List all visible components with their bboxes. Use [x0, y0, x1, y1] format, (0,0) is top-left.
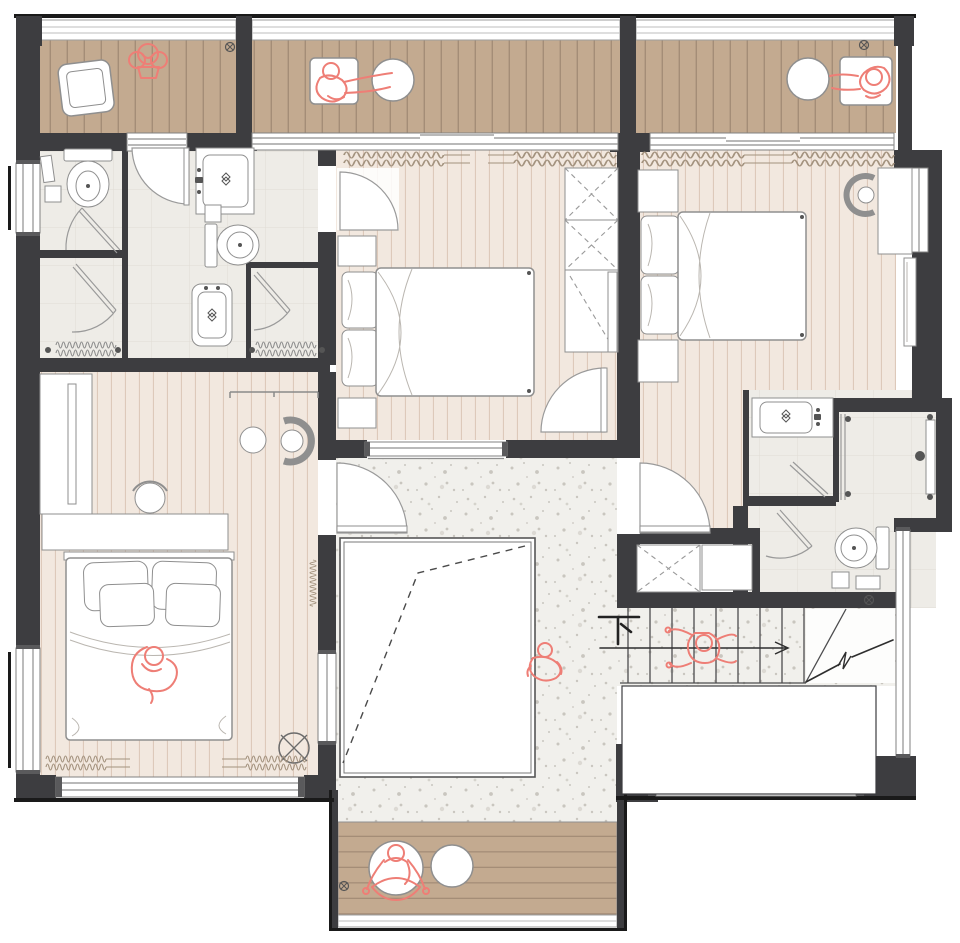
mirror-panel [608, 272, 617, 352]
floor-plan-page [0, 0, 960, 943]
vanity-center [195, 148, 254, 214]
window-left-bathroom [8, 160, 40, 236]
railing-top-center [252, 20, 620, 40]
hamper [205, 205, 221, 222]
railing-top-left [40, 20, 236, 40]
nightstand [338, 398, 376, 428]
window-bay-bedroom-right [912, 168, 928, 252]
toilet-wc-left [64, 149, 112, 207]
deck-balcony-top-center [252, 40, 620, 133]
stool [135, 483, 165, 513]
bed-left [64, 552, 234, 740]
window-bedroom-left-to-hall [318, 650, 336, 745]
waste-bin [832, 572, 849, 588]
void-opening [340, 538, 535, 777]
window-bedroom-center-to-hall [365, 442, 507, 459]
vanity-right [752, 398, 833, 437]
window-band-right [650, 133, 894, 150]
floor-plan-drawing [0, 0, 960, 943]
round-table-right [787, 58, 829, 100]
window-band-center [252, 133, 618, 150]
window-bedroom-left-bottom [56, 777, 304, 797]
bed-center [342, 268, 534, 396]
nightstand [338, 236, 376, 266]
wardrobe-left-bedroom [40, 374, 92, 514]
round-table-center [372, 59, 414, 101]
side-table [240, 427, 266, 453]
pedestal-sink-center [192, 284, 232, 346]
round-cushion [431, 845, 473, 887]
wardrobe-center-bedroom [565, 168, 618, 352]
window-stairs-right [896, 527, 910, 758]
railing-top-right [636, 20, 896, 40]
bed-right [641, 212, 806, 340]
desk [878, 168, 912, 254]
armchair-balcony-left [57, 59, 115, 117]
shower-head-bar [926, 420, 935, 494]
bath-rug [856, 576, 880, 589]
toilet-right [835, 527, 889, 569]
closet-by-stairs [637, 545, 752, 592]
floor-balcony-bottom-threshold [338, 790, 617, 822]
nightstand [638, 170, 678, 212]
toilet-center [205, 224, 259, 267]
wall-shelf [45, 186, 61, 202]
window-left-bedroom [8, 645, 40, 774]
mirror-panel [904, 258, 916, 346]
nightstand [638, 340, 678, 382]
